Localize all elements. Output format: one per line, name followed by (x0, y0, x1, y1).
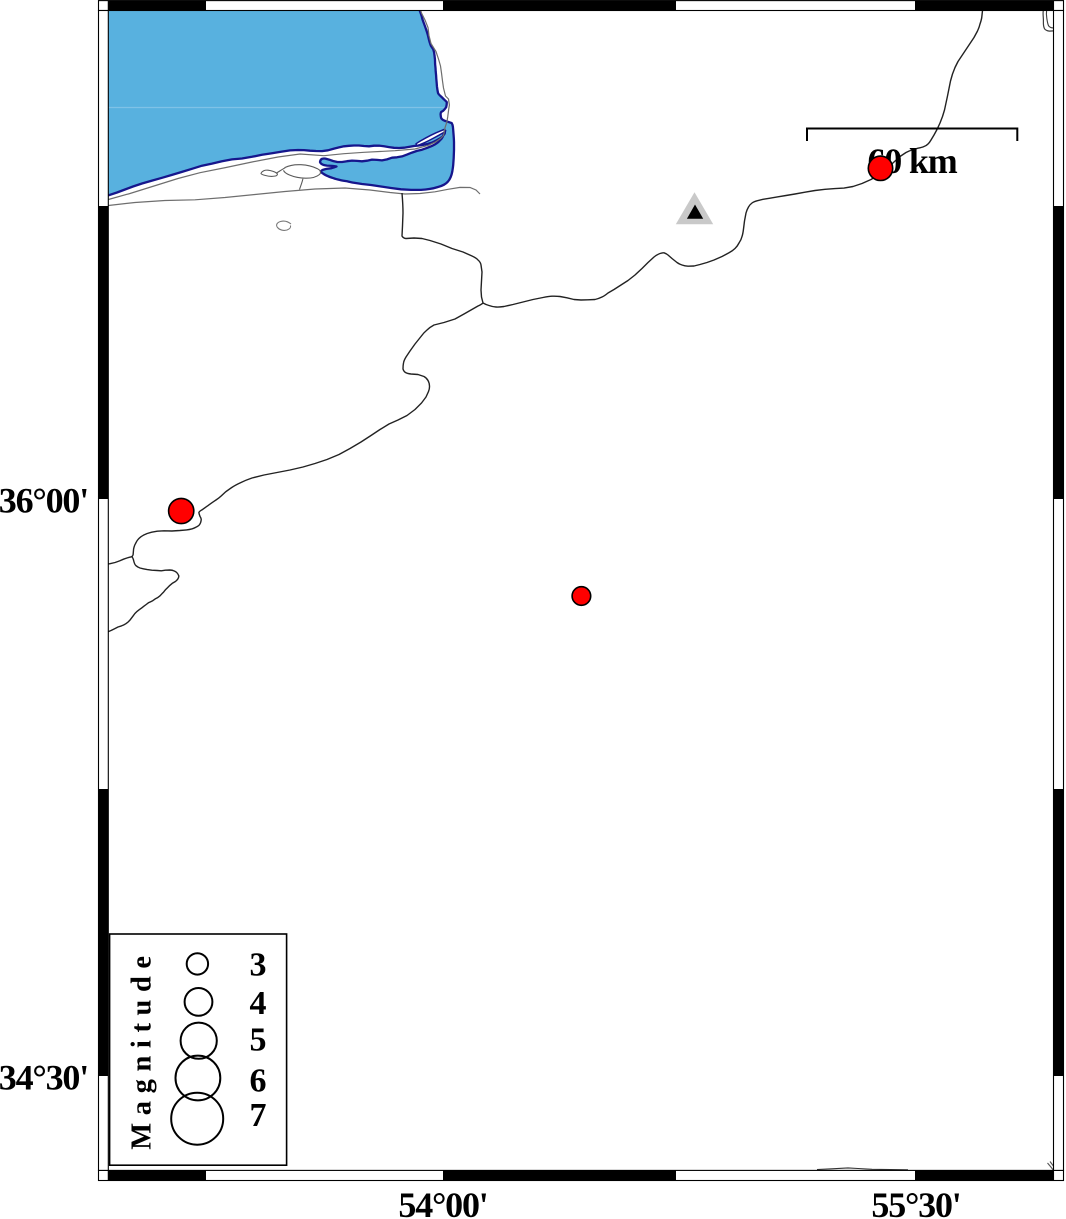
svg-text:54°00': 54°00' (398, 1185, 487, 1219)
svg-text:4: 4 (250, 985, 267, 1022)
svg-text:34°30': 34°30' (0, 1058, 88, 1098)
svg-text:Magnitude: Magnitude (127, 948, 158, 1149)
svg-text:5: 5 (250, 1022, 267, 1059)
svg-text:36°00': 36°00' (0, 481, 88, 521)
svg-text:3: 3 (250, 947, 267, 984)
svg-text:6: 6 (250, 1063, 267, 1100)
svg-text:7: 7 (250, 1097, 267, 1134)
svg-text:55°30': 55°30' (871, 1185, 960, 1219)
